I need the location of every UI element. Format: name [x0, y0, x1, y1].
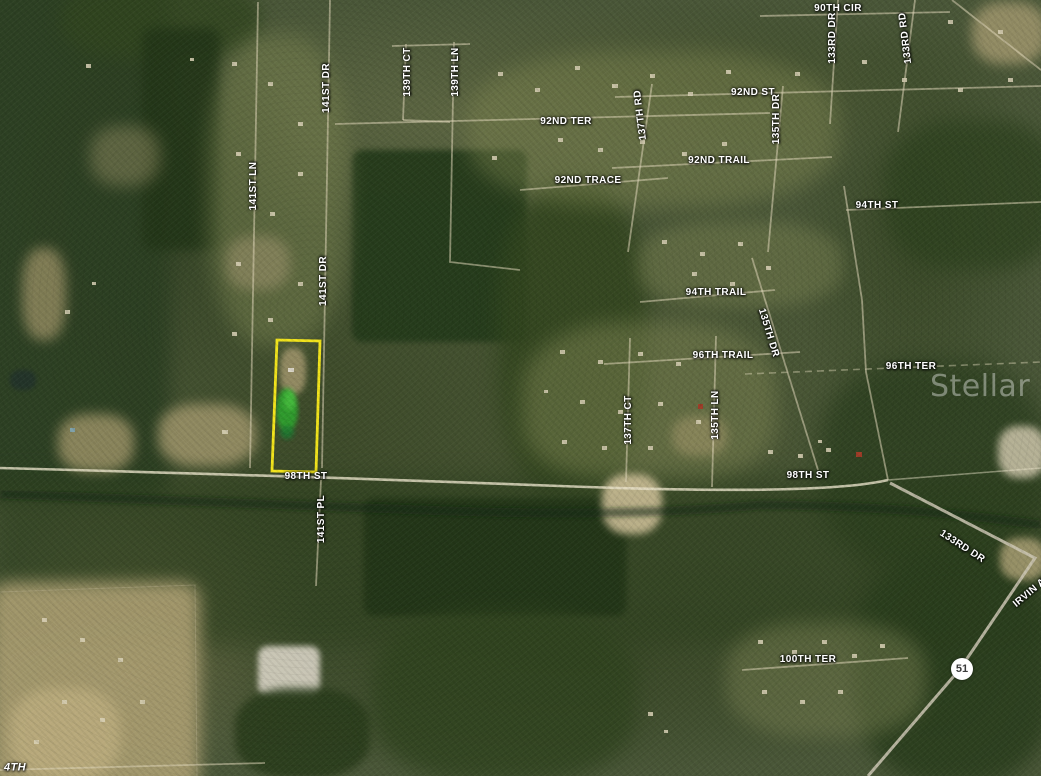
street-label: 133RD DR — [938, 529, 987, 565]
street-label: 141ST DR — [322, 63, 332, 113]
street-label: 137TH CT — [624, 395, 634, 444]
street-label: 92ND TRAIL — [688, 156, 750, 166]
street-label: 133RD RD — [898, 12, 914, 64]
street-label: 133RD DR — [828, 12, 838, 64]
street-label: 135TH DR — [756, 307, 780, 358]
street-label: 135TH LN — [711, 390, 721, 439]
street-label: 90TH CIR — [814, 4, 862, 14]
street-label: 139TH LN — [451, 47, 461, 96]
street-label: 100TH TER — [780, 655, 836, 665]
street-label: IRVIN AVE — [1012, 568, 1041, 609]
street-label: 141ST PL — [317, 495, 327, 543]
highway-51-shield: 51 — [951, 658, 973, 680]
street-label: 98TH ST — [285, 472, 328, 482]
highway-51-number: 51 — [956, 663, 968, 675]
street-label: 92ND TRACE — [555, 176, 622, 186]
street-label: 98TH ST — [787, 471, 830, 481]
street-label: 141ST LN — [249, 162, 259, 211]
street-labels-layer: 90TH CIR92ND ST92ND TER92ND TRAIL92ND TR… — [0, 0, 1041, 776]
street-label: 96TH TER — [886, 362, 936, 372]
street-label: 135TH DR — [772, 94, 782, 144]
street-label: 137TH RD — [633, 89, 649, 140]
street-label: 96TH TRAIL — [693, 351, 754, 361]
street-label: 92ND TER — [540, 117, 592, 127]
street-label: 92ND ST — [731, 88, 775, 98]
satellite-map[interactable]: 90TH CIR92ND ST92ND TER92ND TRAIL92ND TR… — [0, 0, 1041, 776]
street-label: 94TH ST — [856, 201, 899, 211]
street-label: 141ST DR — [319, 256, 329, 306]
street-label: 139TH CT — [403, 47, 413, 96]
stellar-mls-watermark: Stellar MLS — [930, 370, 1041, 403]
street-label: 94TH TRAIL — [686, 288, 747, 298]
street-label: 4TH — [4, 763, 26, 774]
